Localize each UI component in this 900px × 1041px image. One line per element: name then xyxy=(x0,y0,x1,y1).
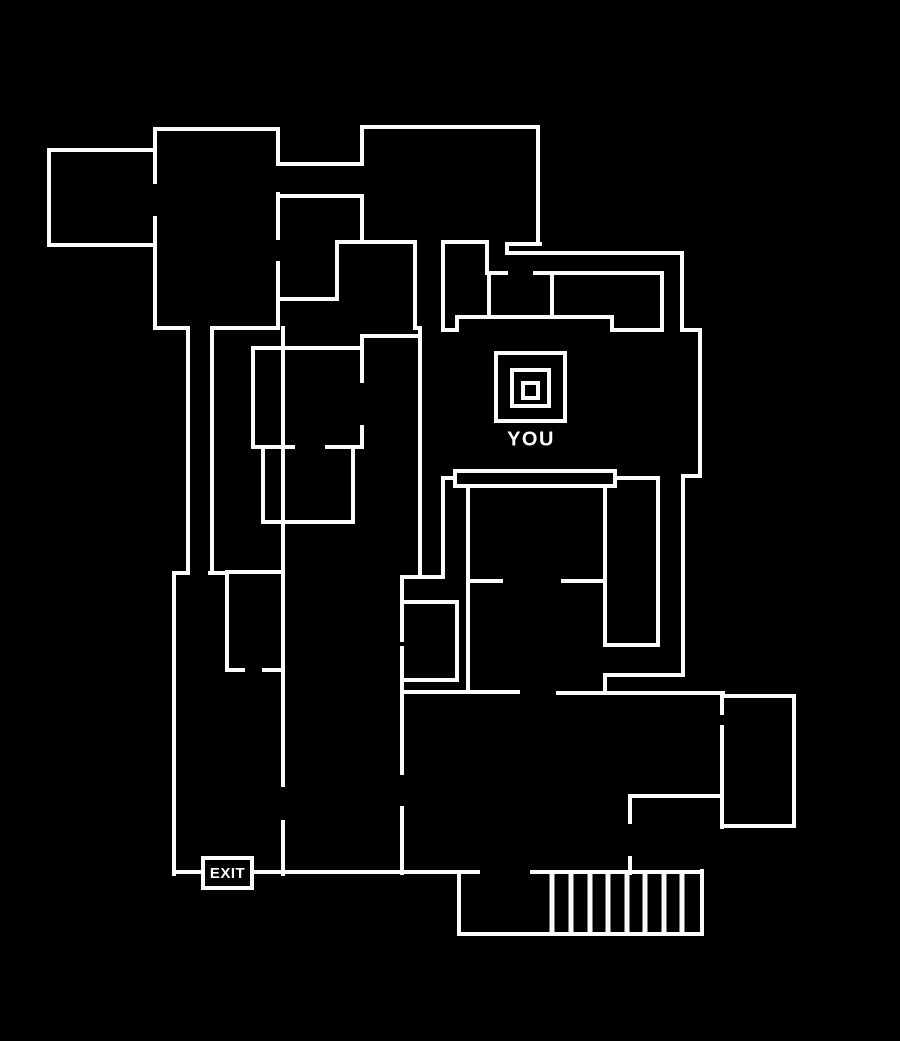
stage-desk xyxy=(455,471,615,486)
game-map: YOU EXIT xyxy=(0,0,900,1041)
you-marker-inner-square xyxy=(523,383,538,398)
floorplan-svg xyxy=(0,0,900,1041)
you-marker-label: YOU xyxy=(507,429,555,452)
you-marker-outer-square xyxy=(496,353,565,421)
exit-badge: EXIT xyxy=(201,856,254,890)
you-marker-middle-square xyxy=(512,370,549,406)
exit-badge-label: EXIT xyxy=(210,865,245,882)
